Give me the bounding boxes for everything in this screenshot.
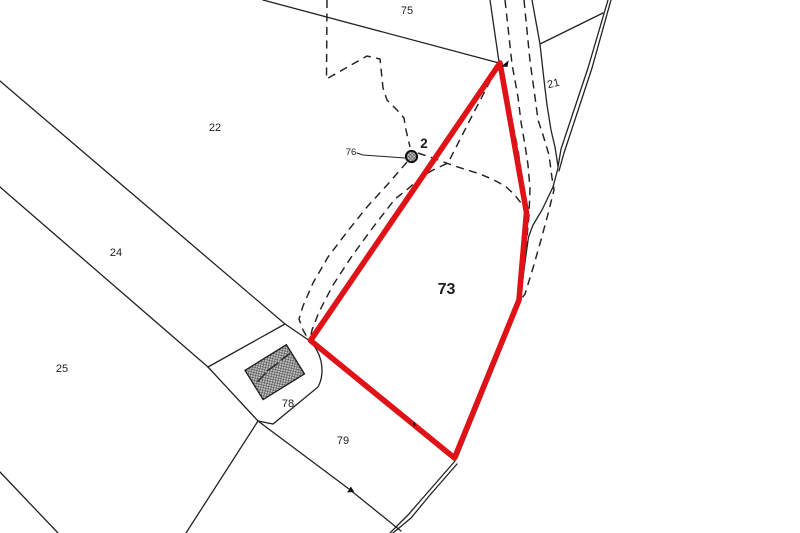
svg-text:2: 2: [420, 136, 428, 151]
svg-text:24: 24: [110, 247, 122, 259]
svg-text:76: 76: [346, 147, 357, 158]
svg-text:25: 25: [56, 363, 68, 375]
svg-text:75: 75: [401, 5, 413, 17]
svg-text:79: 79: [337, 435, 349, 447]
svg-text:73: 73: [438, 281, 456, 298]
svg-text:22: 22: [209, 122, 221, 134]
svg-text:78: 78: [282, 398, 294, 410]
